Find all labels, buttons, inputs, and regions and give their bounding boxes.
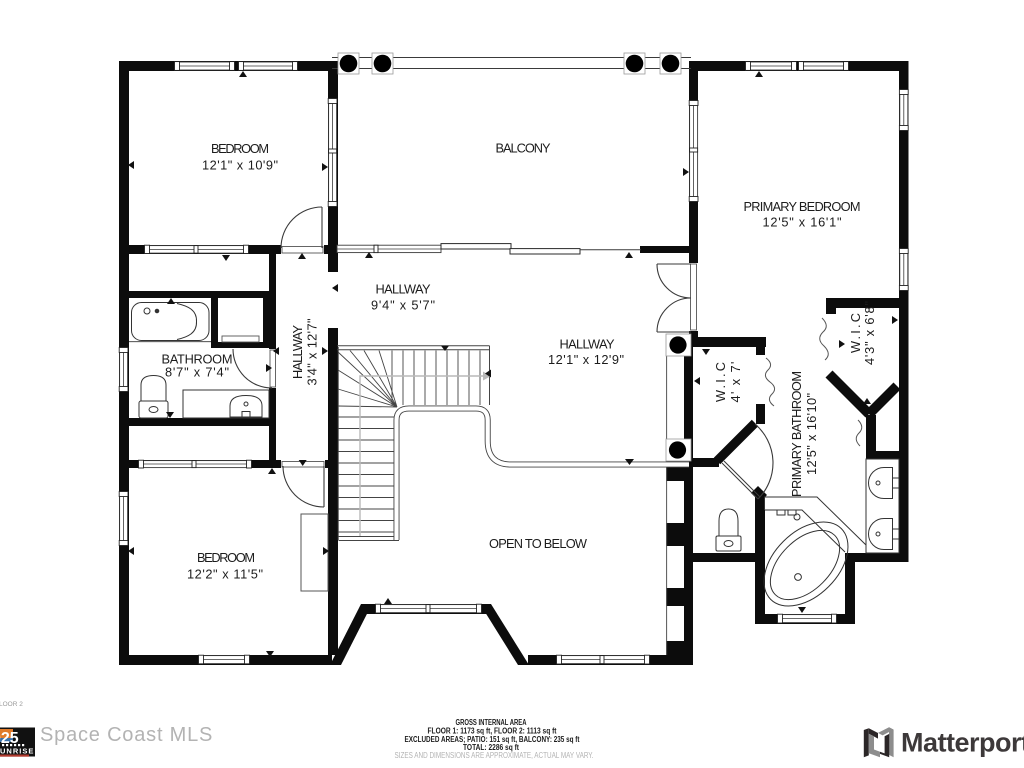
svg-text:12'5" x 16'1": 12'5" x 16'1" bbox=[763, 215, 842, 230]
svg-text:3'4" x 12'7": 3'4" x 12'7" bbox=[305, 319, 320, 386]
svg-text:HALLWAY: HALLWAY bbox=[376, 282, 431, 297]
svg-text:4' x 7': 4' x 7' bbox=[728, 362, 743, 403]
svg-text:12'1" x 12'9": 12'1" x 12'9" bbox=[548, 352, 624, 367]
svg-text:BEDROOM: BEDROOM bbox=[211, 141, 269, 156]
svg-text:Space Coast MLS: Space Coast MLS bbox=[40, 724, 213, 746]
svg-text:PRIMARY BATHROOM: PRIMARY BATHROOM bbox=[789, 371, 804, 497]
svg-text:12'1" x 10'9": 12'1" x 10'9" bbox=[202, 158, 278, 173]
svg-text:PRIMARY BEDROOM: PRIMARY BEDROOM bbox=[744, 199, 861, 214]
svg-text:W.I.C: W.I.C bbox=[713, 362, 728, 402]
svg-text:SIZES AND DIMENSIONS ARE APPRO: SIZES AND DIMENSIONS ARE APPROXIMATE, AC… bbox=[395, 750, 594, 760]
svg-text:BALCONY: BALCONY bbox=[496, 141, 551, 156]
svg-text:HALLWAY: HALLWAY bbox=[560, 337, 615, 352]
svg-text:Matterport: Matterport bbox=[901, 728, 1024, 758]
svg-text:FLOOR 2: FLOOR 2 bbox=[0, 701, 23, 708]
svg-text:12'5" x 16'10": 12'5" x 16'10" bbox=[804, 393, 819, 475]
svg-text:9'4" x 5'7": 9'4" x 5'7" bbox=[371, 298, 435, 313]
svg-text:W.I.C: W.I.C bbox=[848, 313, 863, 353]
svg-text:UNRISE: UNRISE bbox=[0, 747, 34, 756]
svg-text:HALLWAY: HALLWAY bbox=[290, 325, 305, 379]
svg-text:4'3" x 6'8": 4'3" x 6'8" bbox=[862, 301, 877, 365]
svg-text:OPEN TO BELOW: OPEN TO BELOW bbox=[489, 536, 588, 551]
svg-text:12'2" x 11'5": 12'2" x 11'5" bbox=[187, 567, 263, 582]
svg-text:BEDROOM: BEDROOM bbox=[197, 550, 255, 565]
svg-text:8'7" x 7'4": 8'7" x 7'4" bbox=[165, 365, 229, 380]
